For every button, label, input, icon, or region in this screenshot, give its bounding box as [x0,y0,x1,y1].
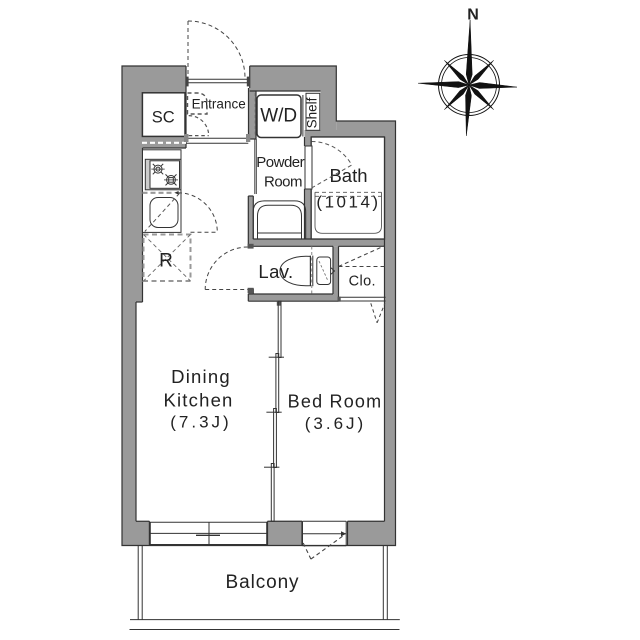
svg-text:Balcony: Balcony [226,572,300,593]
svg-text:SC: SC [152,108,175,126]
svg-text:W/D: W/D [260,105,297,126]
svg-text:(3.6J): (3.6J) [305,414,366,433]
svg-text:(7.3J): (7.3J) [170,413,231,432]
svg-text:R: R [159,251,173,272]
svg-text:Entrance: Entrance [192,97,246,112]
svg-text:Bath: Bath [329,165,367,186]
svg-text:Bed Room: Bed Room [288,391,383,411]
svg-text:Clo.: Clo. [349,274,376,290]
svg-text:Lav.: Lav. [258,261,293,282]
svg-text:N: N [467,7,479,24]
svg-text:Powder: Powder [256,154,304,171]
svg-text:Dining: Dining [171,366,231,387]
svg-text:Kitchen: Kitchen [163,389,233,410]
svg-text:Shelf: Shelf [305,97,320,128]
svg-text:Room: Room [264,174,302,191]
svg-text:(1014): (1014) [316,192,380,211]
